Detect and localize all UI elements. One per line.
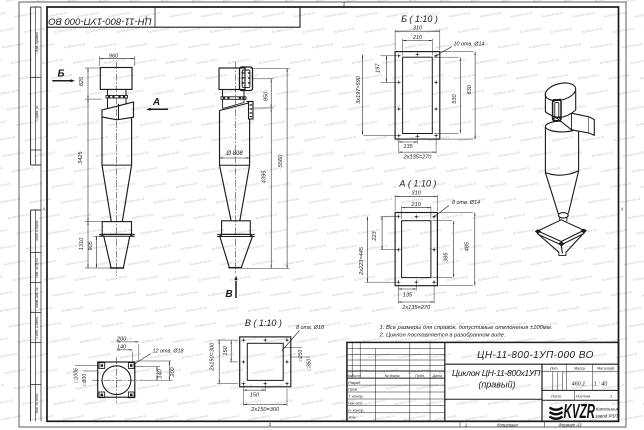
- svg-text:Пров.: Пров.: [348, 388, 357, 392]
- svg-text:1: 1: [465, 423, 467, 428]
- svg-text:10 отв. Ø14: 10 отв. Ø14: [454, 41, 485, 47]
- svg-text:№ докум.: № докум.: [385, 374, 401, 378]
- svg-text:□800: □800: [82, 374, 88, 386]
- svg-text:200: 200: [170, 366, 176, 377]
- svg-text:Лист: Лист: [550, 394, 562, 399]
- svg-text:905: 905: [88, 240, 94, 250]
- svg-text:□350: □350: [307, 359, 313, 371]
- svg-text:5560: 5560: [278, 154, 284, 167]
- svg-text:4395: 4395: [261, 170, 267, 183]
- svg-text:960: 960: [109, 53, 119, 59]
- svg-text:KVZR: KVZR: [564, 401, 596, 423]
- svg-text:1 : 40: 1 : 40: [594, 382, 608, 388]
- svg-text:12 отв. Ø18: 12 отв. Ø18: [153, 348, 184, 354]
- svg-text:8 отв. Ø14: 8 отв. Ø14: [452, 200, 480, 206]
- svg-text:197: 197: [376, 63, 382, 73]
- svg-text:А ( 1:10 ): А ( 1:10 ): [398, 179, 436, 189]
- svg-text:310: 310: [413, 26, 423, 32]
- svg-text:Дата: Дата: [432, 374, 442, 378]
- svg-text:Листов: Листов: [575, 394, 591, 399]
- svg-text:1: 1: [610, 394, 612, 399]
- svg-text:530: 530: [452, 94, 458, 104]
- svg-text:485: 485: [465, 241, 471, 251]
- svg-text:385: 385: [444, 252, 450, 262]
- svg-text:(правый): (правый): [478, 379, 515, 389]
- svg-text:А: А: [621, 207, 624, 212]
- svg-text:Подп. и дата: Подп. и дата: [35, 317, 39, 338]
- svg-text:140: 140: [158, 368, 164, 378]
- svg-text:135: 135: [403, 144, 413, 150]
- svg-text:Нач.отд.: Нач.отд.: [348, 401, 363, 405]
- svg-text:Подп. и дата: Подп. и дата: [35, 221, 39, 242]
- svg-text:630: 630: [467, 84, 473, 94]
- svg-text:460,1: 460,1: [572, 382, 586, 388]
- svg-text:210: 210: [411, 202, 422, 208]
- svg-text:140: 140: [117, 344, 127, 350]
- svg-text:3х197=590: 3х197=590: [356, 75, 362, 104]
- svg-text:Перв. примен.: Перв. примен.: [35, 31, 39, 53]
- svg-text:200: 200: [116, 336, 127, 342]
- svg-text:2х135=270: 2х135=270: [403, 155, 433, 161]
- svg-text:А: А: [152, 97, 160, 108]
- svg-text:Инв. № дубл.: Инв. № дубл.: [35, 257, 39, 277]
- svg-text:Н. контр.: Н. контр.: [348, 409, 364, 413]
- svg-text:Б: Б: [57, 69, 64, 80]
- svg-text:В: В: [225, 289, 232, 300]
- svg-text:Инв. № подл.: Инв. № подл.: [35, 393, 39, 414]
- svg-text:завод РЗП: завод РЗП: [594, 414, 618, 419]
- svg-text:210: 210: [412, 35, 423, 41]
- svg-text:ЦН-11-800-1УП-000 ВО: ЦН-11-800-1УП-000 ВО: [48, 16, 152, 27]
- svg-text:Взам. инв. №: Взам. инв. №: [35, 287, 39, 308]
- svg-text:223: 223: [372, 230, 378, 241]
- svg-text:Копировал: Копировал: [497, 423, 518, 428]
- svg-text:850: 850: [263, 91, 269, 101]
- svg-text:Справ. №: Справ. №: [35, 105, 39, 120]
- svg-text:Формат А3: Формат А3: [559, 423, 583, 428]
- svg-text:150: 150: [223, 345, 229, 355]
- svg-text:Б ( 1:10 ): Б ( 1:10 ): [401, 14, 438, 24]
- svg-text:135: 135: [403, 292, 413, 298]
- svg-text:Т. контр.: Т. контр.: [348, 395, 364, 399]
- svg-text:Подп.: Подп.: [415, 374, 425, 378]
- svg-text:8 отв. Ø18: 8 отв. Ø18: [296, 325, 324, 331]
- svg-text:Лист: Лист: [351, 374, 361, 378]
- svg-text:Циклон ЦН-11-800х1УП: Циклон ЦН-11-800х1УП: [452, 368, 541, 378]
- svg-text:Разраб.: Разраб.: [348, 381, 361, 385]
- svg-text:□250: □250: [298, 350, 304, 362]
- svg-text:ЦН-11-800-1УП-000 ВО: ЦН-11-800-1УП-000 ВО: [477, 350, 594, 361]
- svg-text:1. Все размеры для справок, до: 1. Все размеры для справок, допустимые о…: [380, 325, 553, 331]
- svg-text:310: 310: [412, 191, 422, 197]
- svg-text:150: 150: [250, 393, 260, 399]
- svg-text:В ( 1:10 ): В ( 1:10 ): [245, 318, 282, 328]
- svg-text:Лит.: Лит.: [549, 367, 558, 371]
- svg-text:Утв.: Утв.: [348, 415, 356, 419]
- svg-text:□1006: □1006: [74, 368, 80, 382]
- svg-text:3425: 3425: [78, 151, 84, 164]
- svg-text:Масштаб: Масштаб: [597, 367, 615, 371]
- svg-text:2х135=270: 2х135=270: [401, 305, 431, 311]
- svg-text:Масса: Масса: [574, 367, 585, 371]
- svg-text:2х223=445: 2х223=445: [359, 246, 365, 276]
- svg-text:2х150=300: 2х150=300: [209, 342, 215, 372]
- svg-text:А: А: [43, 207, 46, 212]
- svg-text:Ø 808: Ø 808: [225, 151, 243, 157]
- svg-text:1310: 1310: [79, 237, 85, 250]
- svg-text:Капельный: Капельный: [596, 406, 620, 412]
- svg-text:2х150=300: 2х150=300: [250, 407, 280, 413]
- svg-text:2. Циклон поставляется в разоб: 2. Циклон поставляется в разобранном вид…: [379, 333, 506, 339]
- svg-text:825: 825: [79, 76, 85, 86]
